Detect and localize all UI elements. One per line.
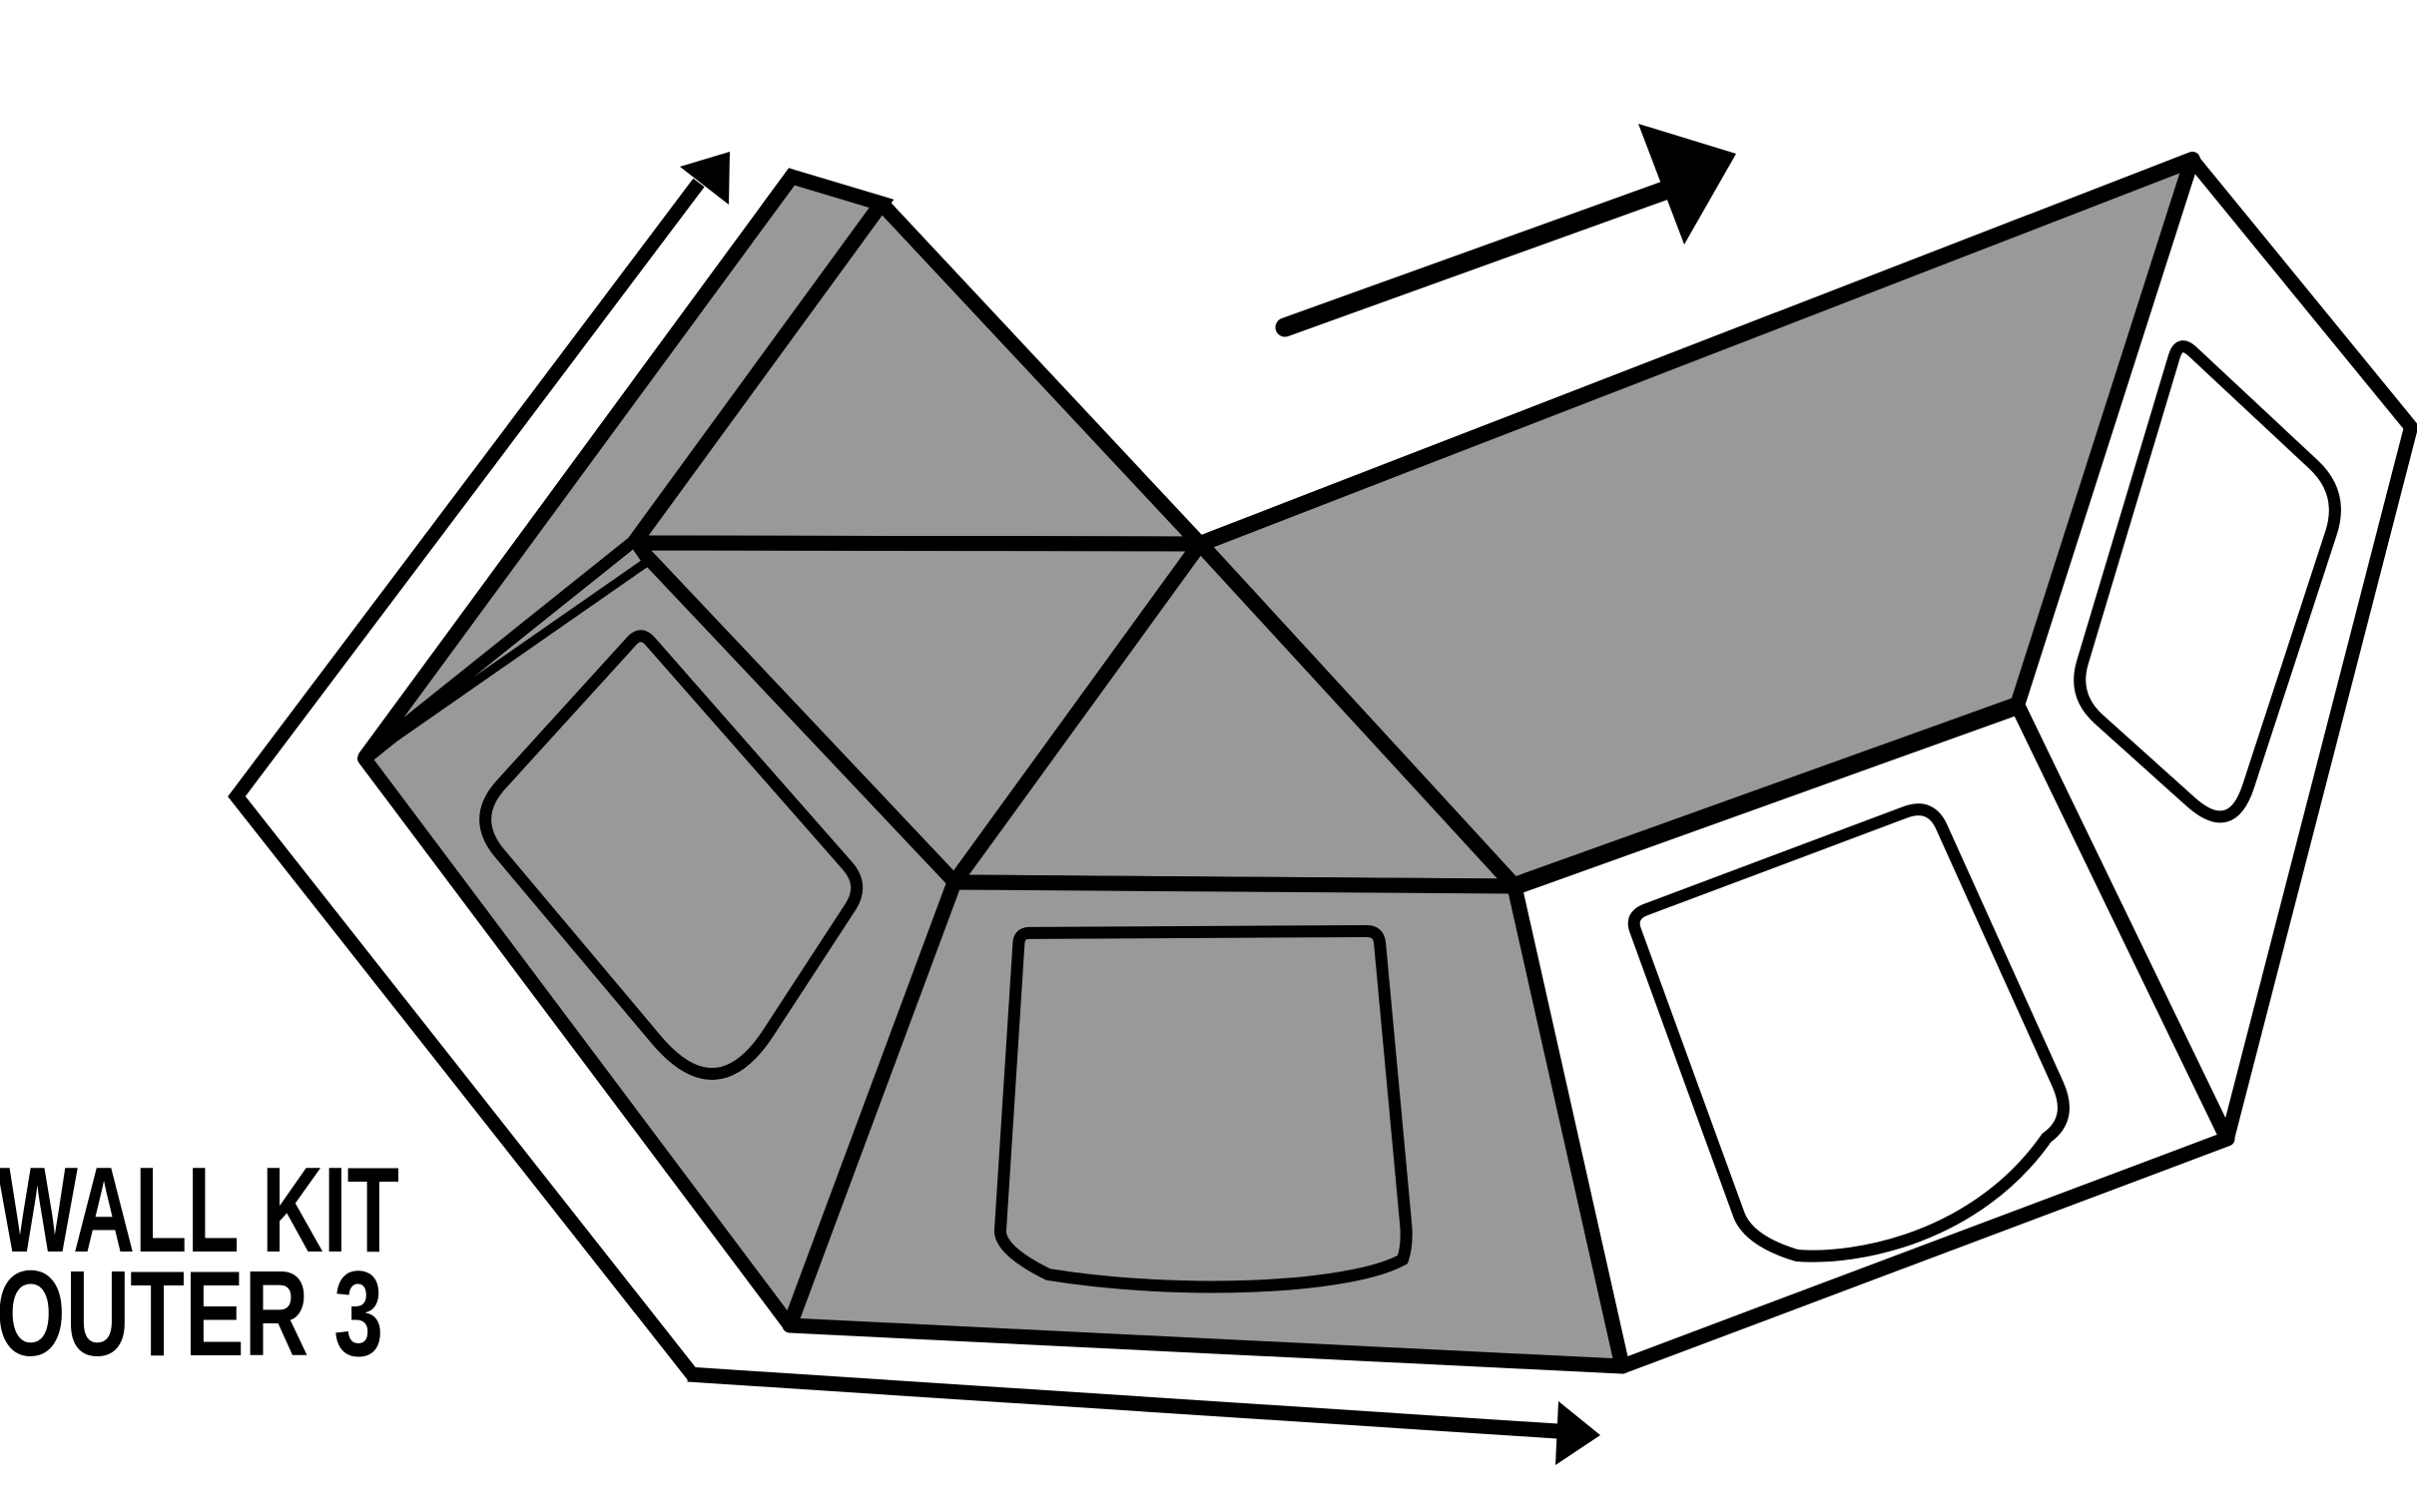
svg-text:OUTER 3: OUTER 3 bbox=[0, 1246, 383, 1381]
